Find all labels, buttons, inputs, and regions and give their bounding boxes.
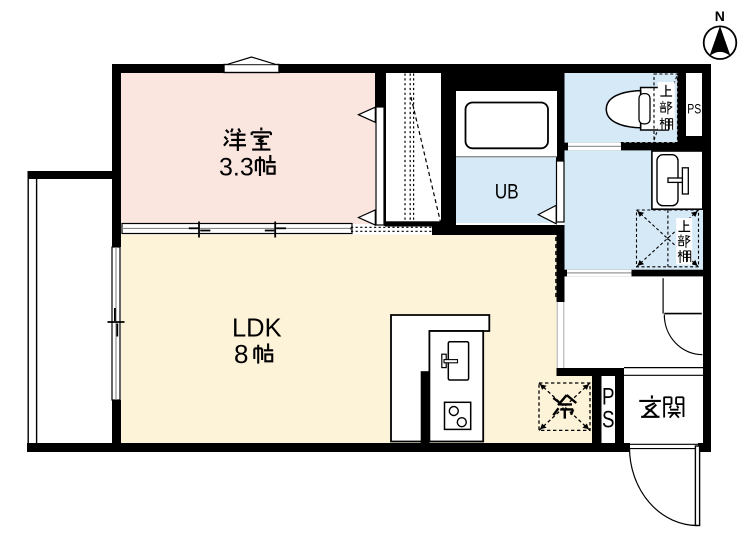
svg-text:8: 8 xyxy=(234,339,248,369)
svg-text:S: S xyxy=(602,407,615,434)
svg-text:N: N xyxy=(715,8,725,24)
svg-text:3.3: 3.3 xyxy=(219,154,254,182)
svg-text:UB: UB xyxy=(495,181,519,204)
svg-text:PS: PS xyxy=(687,102,701,117)
